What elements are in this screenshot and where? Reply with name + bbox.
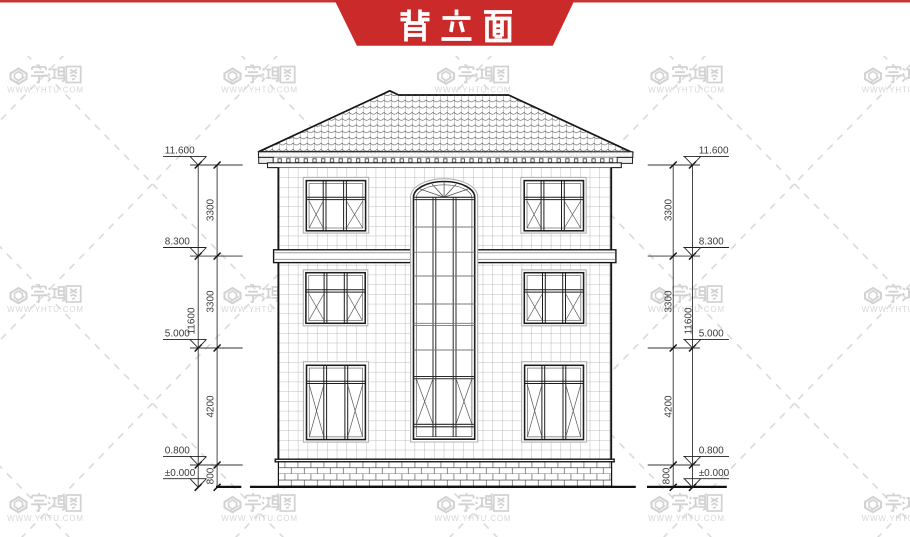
svg-text:±0.000: ±0.000 [165, 468, 196, 479]
svg-text:WWW.YHTU.COM: WWW.YHTU.COM [7, 305, 84, 314]
svg-text:800: 800 [205, 467, 216, 484]
svg-text:11.600: 11.600 [699, 146, 729, 157]
svg-text:3300: 3300 [206, 198, 217, 221]
svg-text:800: 800 [662, 467, 673, 484]
svg-text:±0.000: ±0.000 [699, 468, 730, 479]
svg-text:WWW.YHTU.COM: WWW.YHTU.COM [648, 86, 725, 95]
svg-text:WWW.YHTU.COM: WWW.YHTU.COM [435, 514, 512, 523]
svg-text:WWW.YHTU.COM: WWW.YHTU.COM [7, 86, 84, 95]
svg-text:WWW.YHTU.COM: WWW.YHTU.COM [862, 86, 910, 95]
svg-text:5.000: 5.000 [699, 329, 724, 340]
svg-text:WWW.YHTU.COM: WWW.YHTU.COM [221, 514, 298, 523]
svg-text:WWW.YHTU.COM: WWW.YHTU.COM [862, 514, 910, 523]
svg-text:8.300: 8.300 [165, 237, 190, 248]
svg-text:11600: 11600 [187, 307, 198, 335]
svg-text:0.800: 0.800 [699, 446, 724, 457]
svg-text:8.300: 8.300 [699, 237, 724, 248]
svg-text:WWW.YHTU.COM: WWW.YHTU.COM [221, 86, 298, 95]
svg-text:WWW.YHTU.COM: WWW.YHTU.COM [7, 514, 84, 523]
svg-text:0.800: 0.800 [165, 446, 190, 457]
svg-text:11600: 11600 [683, 307, 694, 335]
svg-text:3300: 3300 [206, 290, 217, 313]
svg-text:3300: 3300 [663, 290, 674, 313]
svg-text:4200: 4200 [206, 395, 217, 418]
svg-text:4200: 4200 [663, 395, 674, 418]
svg-text:11.600: 11.600 [165, 146, 195, 157]
svg-text:WWW.YHTU.COM: WWW.YHTU.COM [648, 514, 725, 523]
svg-text:WWW.YHTU.COM: WWW.YHTU.COM [862, 305, 910, 314]
svg-text:WWW.YHTU.COM: WWW.YHTU.COM [435, 86, 512, 95]
svg-text:3300: 3300 [663, 198, 674, 221]
